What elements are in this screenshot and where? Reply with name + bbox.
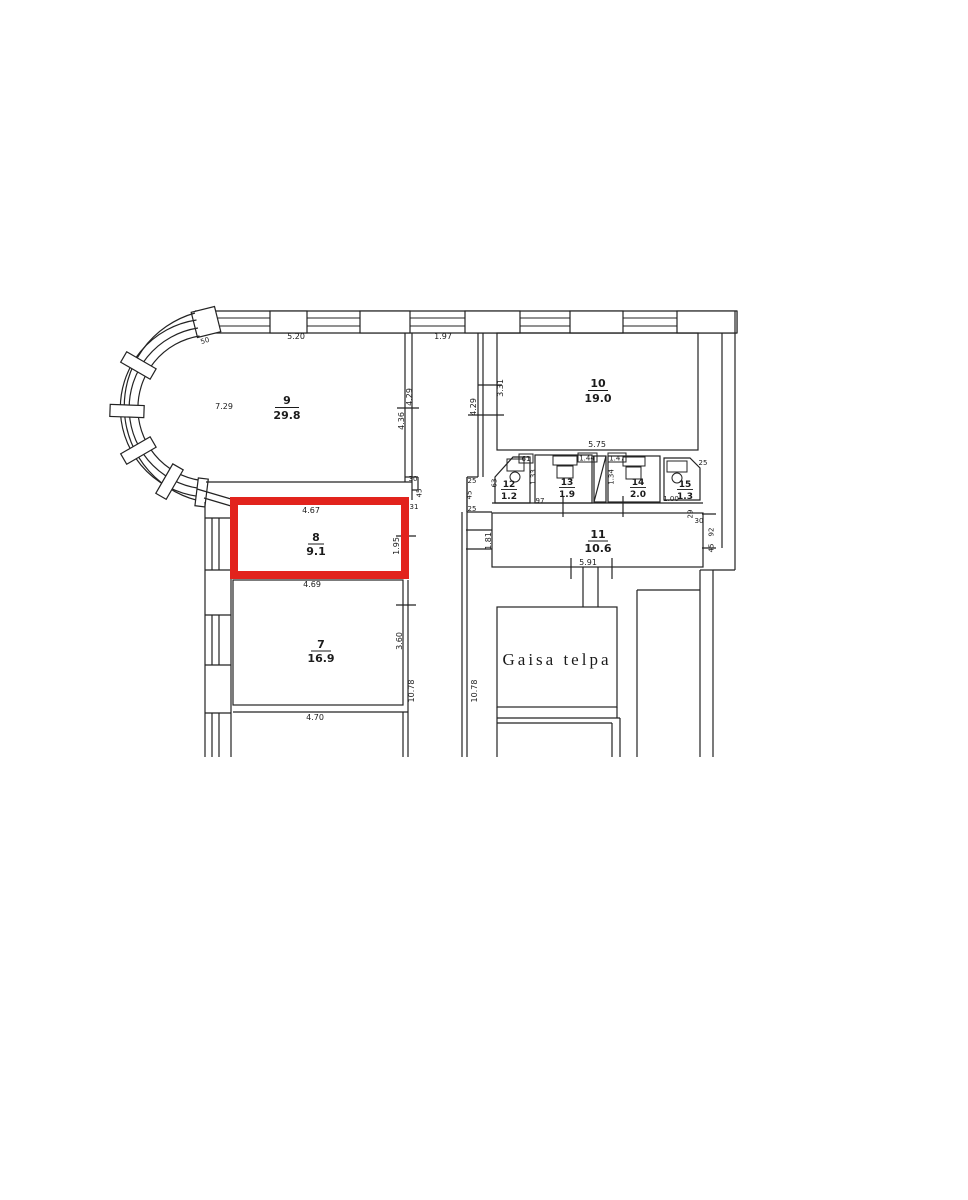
room13-number: 13 <box>561 478 574 488</box>
dim-92: 92 <box>708 528 716 537</box>
toilet-bowl-icon <box>557 466 573 478</box>
floor-plan-page: 9 29.8 10 19.0 11 10.6 8 9.1 7 16.9 12 1… <box>0 0 968 1200</box>
dim-45-left: 45 <box>416 489 424 498</box>
room12-area: 1.2 <box>501 492 517 502</box>
room13-area: 1.9 <box>559 490 575 500</box>
dim-25-bottom: 25 <box>468 505 477 513</box>
dim-97: 97 <box>536 497 545 505</box>
dim-room10-wall-lower: 4.29 <box>469 398 478 416</box>
dim-25-room15: 25 <box>699 459 708 467</box>
air-space-walls <box>497 607 620 757</box>
dim-room10-bottom: 5.75 <box>588 440 606 449</box>
dim-63-tag: 63 <box>491 479 499 488</box>
room15-area: 1.3 <box>677 492 693 502</box>
dim-45-right: 45 <box>466 491 474 500</box>
dim-134: 1.34 <box>608 469 616 485</box>
dim-room7-top: 4.69 <box>303 580 321 589</box>
dim-room11-left: 1.81 <box>484 532 493 550</box>
room9-number: 9 <box>283 394 291 407</box>
room7-number: 7 <box>317 638 325 651</box>
dim-100: 1.00 <box>663 495 679 503</box>
bay-window-mullions <box>110 352 208 507</box>
dim-room8-right: 1.95 <box>392 537 401 555</box>
room10-area: 19.0 <box>584 392 611 405</box>
dim-room9-wall-lower: 4.36 <box>397 412 406 430</box>
dim-61-tag: 61 <box>522 455 531 463</box>
dim-30-left: 30 <box>409 475 418 483</box>
toilet-tank-icon <box>553 456 577 465</box>
dim-height-left: 10.78 <box>407 680 416 703</box>
room14-area: 2.0 <box>630 490 646 500</box>
dim-room7-right: 3.60 <box>395 632 404 650</box>
room9-walls <box>206 333 419 482</box>
room10-number: 10 <box>590 377 606 390</box>
room7-area: 16.9 <box>307 652 334 665</box>
dim-133: 1.33 <box>530 469 538 485</box>
dim-room9-width: 7.29 <box>215 402 233 411</box>
room11-number: 11 <box>590 528 605 541</box>
dim-25-top: 25 <box>468 477 477 485</box>
room15-number: 15 <box>679 480 692 490</box>
dim-room9-wall-upper: 4.29 <box>405 388 414 406</box>
room9-area: 29.8 <box>273 409 300 422</box>
lower-corridor-walls <box>462 477 467 757</box>
left-wall <box>197 489 231 757</box>
room8-number: 8 <box>312 531 320 544</box>
dim-room-below-top: 4.70 <box>306 713 324 722</box>
air-space-label: Gaisa telpa <box>503 650 612 669</box>
dim-29: 29 <box>687 510 695 519</box>
room12-number: 12 <box>503 480 516 490</box>
door-leaf-diagonal <box>594 456 606 502</box>
room14-number: 14 <box>632 478 645 488</box>
dimension-labels: 5.20 1.97 7.29 4.29 4.36 3.31 4.29 5.75 … <box>200 332 716 722</box>
dim-corridor-width: 1.97 <box>434 332 452 341</box>
dim-room11-bottom: 5.91 <box>579 558 597 567</box>
dim-45-wall: 45 <box>708 544 716 553</box>
dim-147-tag: 1.47 <box>609 455 625 463</box>
sink-icon <box>667 461 687 472</box>
dim-height-right: 10.78 <box>470 680 479 703</box>
corridor-walls <box>405 333 504 512</box>
dim-curve-joint: 50 <box>200 336 211 346</box>
dim-31: 31 <box>410 503 419 511</box>
dim-30-right: 30 <box>695 517 704 525</box>
room11-area: 10.6 <box>584 542 611 555</box>
room8-area: 9.1 <box>306 545 326 558</box>
dim-room10-wall-upper: 3.31 <box>496 379 505 397</box>
dim-top-room9: 5.20 <box>287 332 305 341</box>
dim-144-tag: 1.44 <box>579 455 595 463</box>
floor-plan-drawing: 9 29.8 10 19.0 11 10.6 8 9.1 7 16.9 12 1… <box>0 0 968 1200</box>
dim-room8-top: 4.67 <box>302 506 320 515</box>
right-wall <box>637 311 735 757</box>
walls-group <box>110 306 737 757</box>
